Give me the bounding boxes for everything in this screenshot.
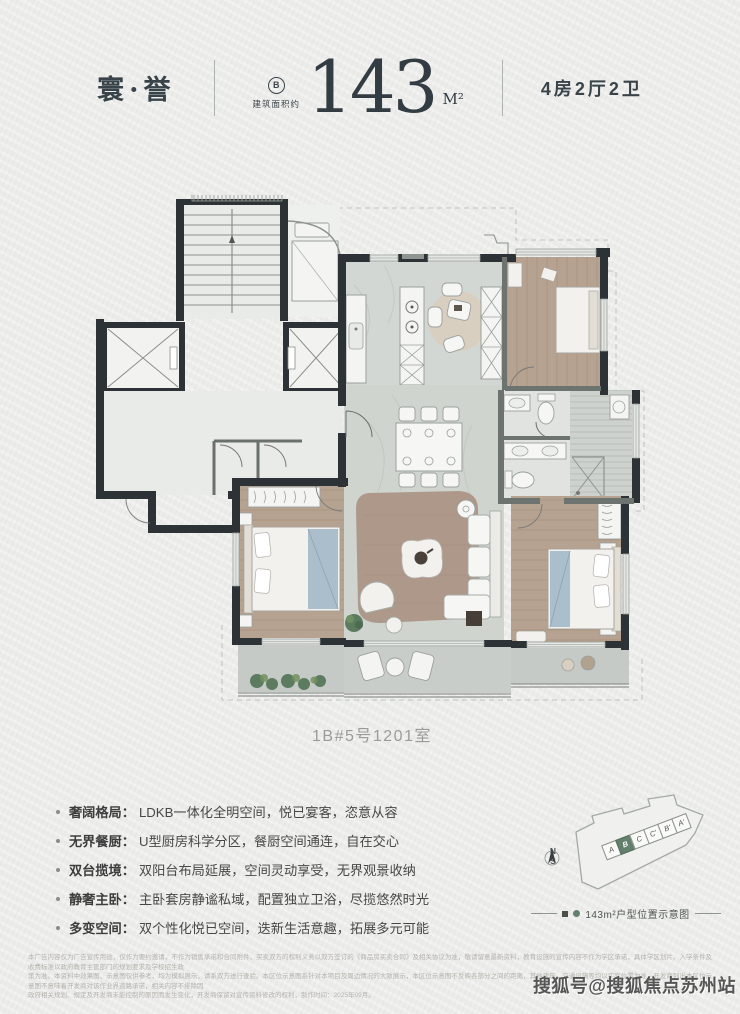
feature-desc: U型厨房科学分区，餐厨空间通连，自在交心	[139, 831, 399, 850]
feature-title: 奢阔格局：	[69, 802, 135, 821]
feature-list: 奢阔格局：LDKB一体化全明空间，悦已宴客，恣意从容 无界餐厨：U型厨房科学分区…	[56, 797, 526, 942]
feature-desc: 双阳台布局延展，空间灵动享受，无界观景收纳	[139, 860, 416, 879]
location-diagram: A B C C' B' A' N S	[538, 790, 724, 908]
bedroom-top-right	[504, 257, 600, 391]
core-stairwell	[176, 199, 288, 321]
balcony-right	[511, 648, 629, 687]
bullet-icon	[56, 926, 60, 930]
diagram-legend: 143m²户型位置示意图	[526, 906, 726, 921]
floorplan-svg	[92, 195, 652, 715]
balcony-left	[238, 645, 344, 696]
area-label: 建筑面积约	[253, 98, 301, 110]
area-group: B 建筑面积约 143 M²	[253, 58, 464, 117]
laundry-area	[570, 390, 632, 503]
compass: N S	[544, 846, 562, 866]
feature-title: 静奢主卧：	[69, 889, 135, 908]
room-config: 4房2厅2卫	[541, 75, 643, 101]
bullet-icon	[56, 868, 60, 872]
watermark: 搜狐号@搜狐焦点苏州站	[533, 972, 736, 998]
closet-column	[481, 287, 502, 379]
area-badge-block: B 建筑面积约	[253, 77, 301, 110]
header-divider-left	[214, 60, 215, 116]
balcony-center	[344, 647, 511, 697]
feature-title: 多变空间：	[69, 918, 135, 937]
area-unit: M²	[442, 90, 463, 108]
compass-needle-icon	[544, 846, 560, 870]
bathroom-shared	[502, 390, 570, 438]
legend-caption: 143m²户型位置示意图	[585, 906, 689, 921]
project-name: 寰·誉	[97, 68, 175, 107]
feature-desc: LDKB一体化全明空间，悦已宴客，恣意从容	[139, 802, 398, 821]
legend-rule-right	[695, 913, 721, 914]
legend-rule-left	[531, 913, 557, 914]
feature-title: 双台揽境：	[69, 860, 135, 879]
feature-item: 无界餐厨：U型厨房科学分区，餐厨空间通连，自在交心	[56, 826, 526, 855]
master-bedroom	[511, 496, 621, 647]
disclaimer-line: 本广告内容仅为广告宣传用途，仅作为要约邀请，不作为销售承诺和合同附件，买卖双方的…	[28, 953, 712, 972]
bedroom-left	[238, 485, 344, 638]
legend-square-icon	[562, 911, 568, 917]
unit-address: 1B#5号1201室	[92, 722, 652, 746]
feature-title: 无界餐厨：	[69, 831, 135, 850]
bullet-icon	[56, 810, 60, 814]
header-divider-right	[502, 60, 503, 116]
feature-item: 双台揽境：双阳台布局延展，空间灵动享受，无界观景收纳	[56, 855, 526, 884]
bullet-icon	[56, 897, 60, 901]
bullet-icon	[56, 839, 60, 843]
unit-type-badge: B	[268, 77, 285, 94]
elevator-left	[104, 325, 182, 391]
elevator-right	[286, 325, 346, 391]
bathroom-master	[502, 438, 570, 503]
legend-green-dot-icon	[573, 910, 580, 917]
feature-item: 多变空间：双个性化悦已空间，迭新生活意趣，拓展多元可能	[56, 913, 526, 942]
area-value: 143	[307, 58, 435, 117]
feature-desc: 双个性化悦已空间，迭新生活意趣，拓展多元可能	[139, 918, 429, 937]
header: 寰·誉 B 建筑面积约 143 M² 4房2厅2卫	[0, 58, 740, 117]
feature-desc: 主卧套房静谧私域，配置独立卫浴，尽揽悠然时光	[139, 889, 429, 908]
feature-item: 奢阔格局：LDKB一体化全明空间，悦已宴客，恣意从容	[56, 797, 526, 826]
feature-item: 静奢主卧：主卧套房静谧私域，配置独立卫浴，尽揽悠然时光	[56, 884, 526, 913]
